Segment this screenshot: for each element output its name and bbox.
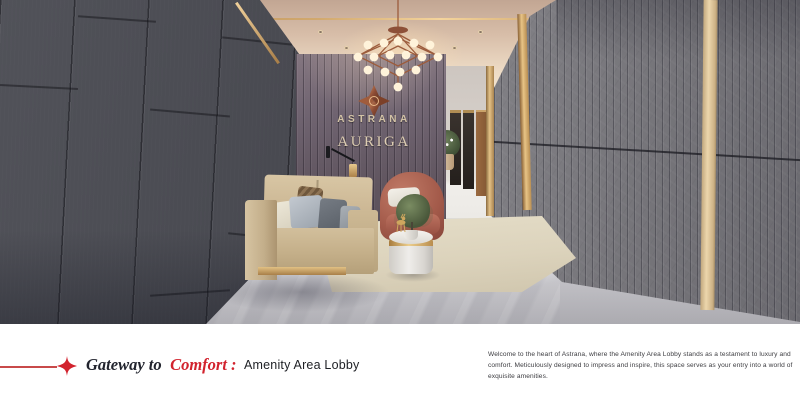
brochure-page: ASTRANA AURIGA (0, 0, 800, 400)
stone-shadow (556, 0, 800, 60)
spotlight-icon (318, 30, 323, 34)
sofa-gold-base (258, 267, 346, 275)
heading-label-text: Amenity Area Lobby (244, 358, 359, 372)
sparkle-icon (57, 356, 77, 376)
caption-heading: Gateway to Comfort : Amenity Area Lobby (86, 355, 359, 375)
chandelier (340, 0, 460, 100)
wall-lamp-icon (326, 146, 330, 158)
spotlight-icon (478, 30, 483, 34)
caption-description: Welcome to the heart of Astrana, where t… (488, 349, 796, 382)
heading-accent-text: Comfort : (170, 355, 236, 374)
elevator-door (463, 110, 474, 189)
brand-title: ASTRANA (306, 114, 442, 125)
wall-switch-plate (349, 164, 357, 177)
hallway-gold-frame (486, 66, 494, 216)
heading-italic-text: Gateway to (86, 355, 162, 374)
lobby-render: ASTRANA AURIGA (0, 0, 800, 324)
accent-divider-line (0, 366, 57, 368)
deer-figurine-icon (394, 212, 408, 234)
sofa-shadow (210, 272, 390, 312)
caption-band: Gateway to Comfort : Amenity Area Lobby … (0, 324, 800, 400)
